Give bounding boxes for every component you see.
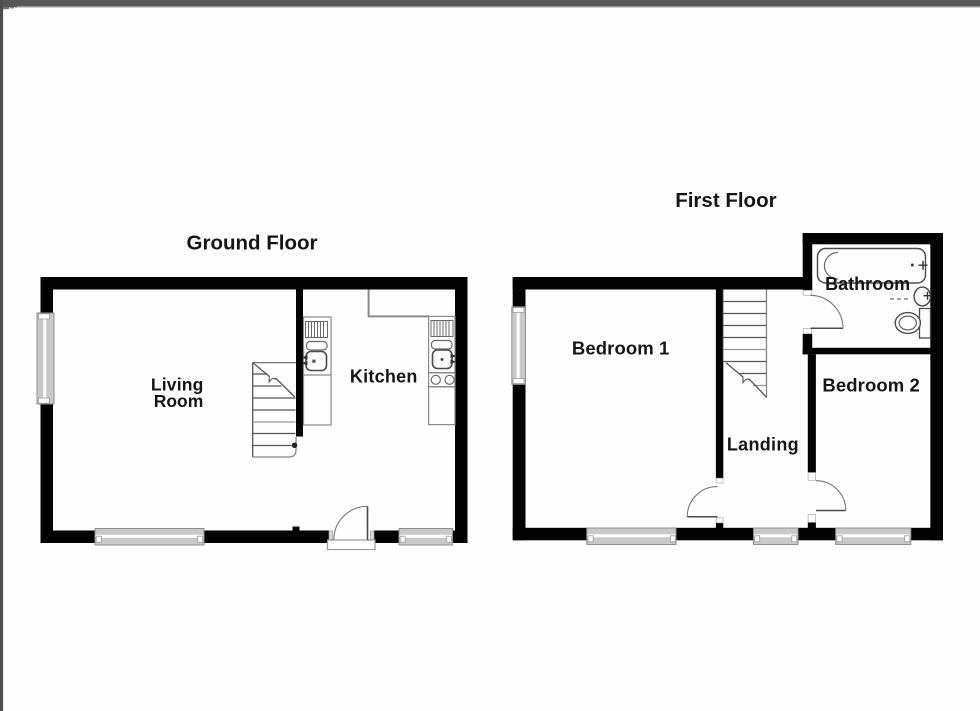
svg-text:Ground Floor: Ground Floor — [187, 231, 318, 254]
svg-text:Bedroom 2: Bedroom 2 — [822, 375, 920, 396]
svg-text:Landing: Landing — [727, 434, 799, 454]
svg-text:Bathroom: Bathroom — [825, 274, 910, 294]
svg-text:Room: Room — [154, 391, 204, 411]
svg-text:Kitchen: Kitchen — [350, 366, 418, 386]
svg-text:Bedroom 1: Bedroom 1 — [572, 338, 670, 359]
svg-text:First Floor: First Floor — [675, 189, 776, 212]
